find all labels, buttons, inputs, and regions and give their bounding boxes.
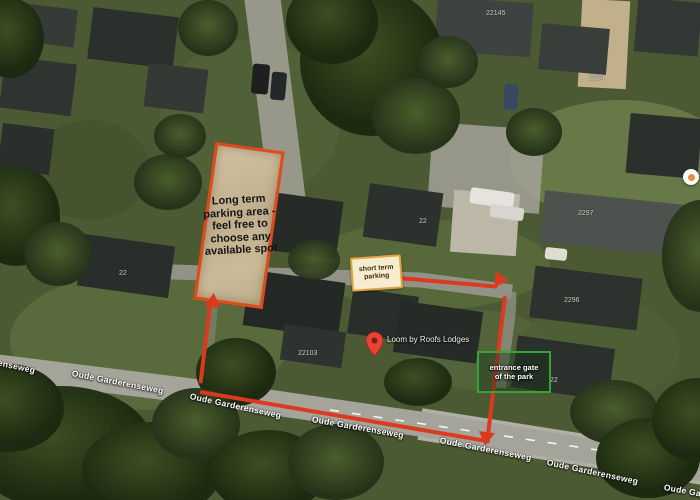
short-term-line: parking (364, 272, 390, 282)
house-number: 2294 (589, 75, 605, 82)
route-arrowhead-up (204, 292, 222, 308)
house-number: 2297 (578, 210, 594, 217)
house-number: 22 (119, 270, 127, 277)
map-viewport[interactable]: Oude Garderenseweg Oude Garderenseweg Ou… (0, 0, 700, 500)
map-pin-label: Loom by Roofs Lodges (387, 335, 469, 344)
entrance-gate-line: entrance gate (490, 363, 539, 372)
house-number: 2296 (564, 297, 580, 304)
short-term-parking-label: short term parking (350, 254, 403, 291)
route-arrowhead-down (477, 431, 495, 447)
house-number: 22103 (298, 350, 317, 357)
house-number: 22 (550, 377, 558, 384)
house-number: 22 (419, 218, 427, 225)
house-number: 22145 (486, 10, 505, 17)
entrance-gate-line: of the park (495, 372, 533, 381)
route-arrowhead-right (494, 271, 509, 288)
poi-dot (688, 174, 695, 181)
long-term-parking-text: Long term parking area - feel free to ch… (186, 191, 293, 259)
poi-icon[interactable] (683, 169, 699, 185)
map-pin-icon (366, 332, 383, 356)
entrance-gate-label: entrance gate of the park (477, 351, 551, 393)
